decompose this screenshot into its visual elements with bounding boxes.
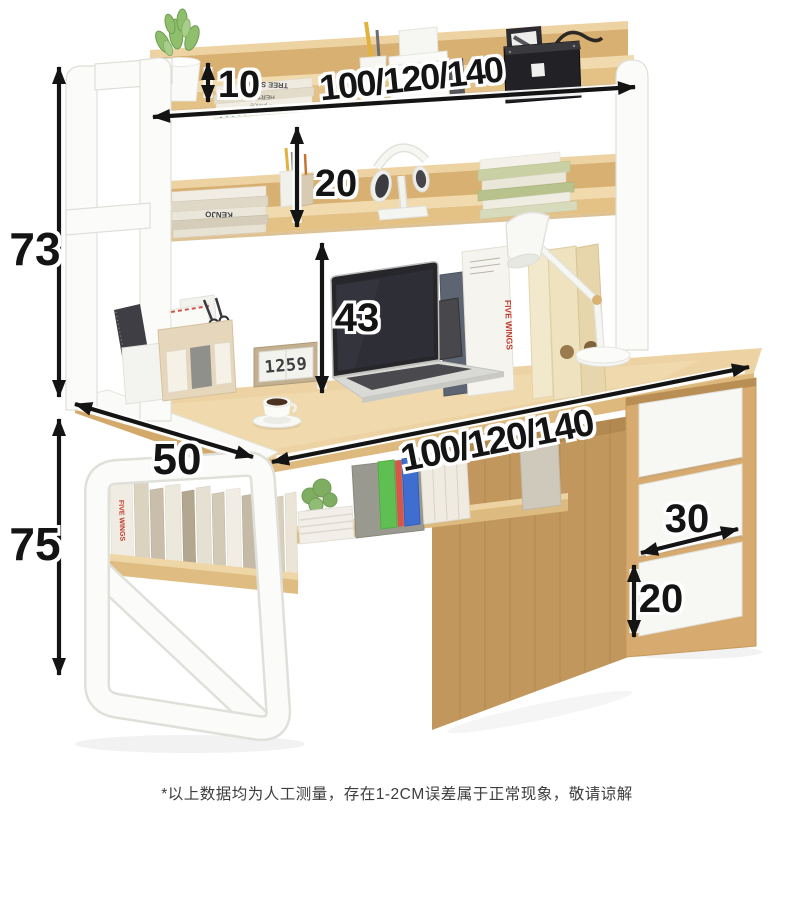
hutch-right-post xyxy=(616,60,648,350)
label-top-shelf-gap: 10 xyxy=(218,66,260,104)
label-drawer-width: 30 xyxy=(665,499,710,539)
book-spine-five-wings: FIVE WINGS xyxy=(503,300,515,351)
furniture-illustration: TREE SCOUT HERTZ the police xyxy=(0,0,790,907)
kenjo-book-stack: KENJO xyxy=(170,186,268,238)
product-dimension-diagram: TREE SCOUT HERTZ the police xyxy=(0,0,790,907)
label-under-hutch-clearance: 43 xyxy=(335,298,380,338)
clock-display: 1259 xyxy=(264,354,309,378)
hutch-left-outer-post xyxy=(66,66,97,410)
middle-shelf-book-stack xyxy=(478,152,577,219)
label-hutch-height: 73 xyxy=(9,226,60,272)
measurement-disclaimer: *以上数据均为人工测量，存在1-2CM误差属于正常现象，敬请谅解 xyxy=(97,782,697,804)
label-desk-height: 75 xyxy=(9,521,60,567)
magazine-files xyxy=(528,244,606,400)
label-drawer-height: 20 xyxy=(639,579,684,619)
flip-clock: 1259 xyxy=(254,342,318,387)
label-middle-shelf-gap: 20 xyxy=(315,165,357,203)
label-desk-depth: 50 xyxy=(153,438,202,482)
desk-organizer xyxy=(114,295,236,404)
book-spine-five-wings-2: FIVE WINGS xyxy=(117,500,125,542)
